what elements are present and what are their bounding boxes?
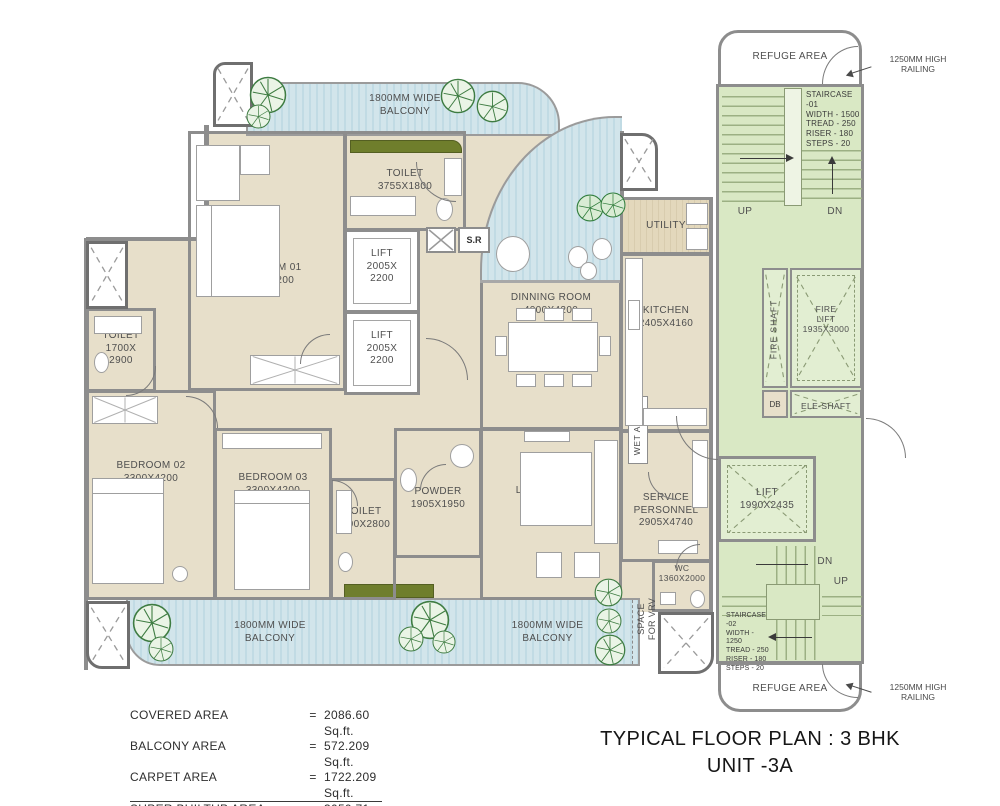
furniture-sofa xyxy=(240,145,270,175)
staircase2-landing-right xyxy=(822,588,862,616)
staircase1-left-flight xyxy=(722,88,784,204)
furniture-vanity xyxy=(350,196,416,216)
balcony-bottom-left-label: 1800MM WIDEBALCONY xyxy=(205,620,335,645)
area-row: BALCONY AREA=572.209 Sq.ft. xyxy=(130,739,382,770)
furniture-wc xyxy=(94,352,109,373)
stair-arrow-line xyxy=(832,162,833,194)
shaft-top-middle xyxy=(620,133,658,191)
balcony-bottom-center-label: 1800MM WIDEBALCONY xyxy=(485,620,610,645)
furniture-wc xyxy=(690,590,705,608)
furniture-kitchen-counter xyxy=(625,258,643,426)
stair-arrow xyxy=(828,152,836,164)
staircase1-up-label: UP xyxy=(728,206,762,219)
furniture-wardrobe xyxy=(92,396,158,424)
area-table: COVERED AREA=2086.60 Sq.ft. BALCONY AREA… xyxy=(130,708,382,806)
furniture-chair xyxy=(599,336,611,356)
furniture-bed-head xyxy=(92,478,164,494)
furniture-chair xyxy=(516,308,536,321)
furniture-bed xyxy=(234,490,310,590)
tree-icon xyxy=(594,578,623,607)
furniture-armchair xyxy=(536,552,562,578)
stair-arrow-line xyxy=(740,158,786,159)
tree-icon xyxy=(398,626,424,652)
furniture-wc xyxy=(338,552,353,572)
staircase2-landing xyxy=(766,584,820,620)
tree-icon xyxy=(476,90,509,123)
floor-plan: 1800MM WIDEBALCONY 1800MM WIDEBALCONY 18… xyxy=(0,0,1000,806)
ele-shaft: ELE-SHAFT xyxy=(790,390,862,418)
furniture-chair xyxy=(580,262,597,280)
furniture-sink xyxy=(628,300,640,330)
vrv-label-wrap: SPACEFOR VRV xyxy=(614,606,684,632)
furniture-chair xyxy=(516,374,536,387)
area-row: SUPER BUILTUP AREA=3050.71 Sq.ft. xyxy=(130,802,382,806)
furniture-chair xyxy=(544,374,564,387)
stair-arrow-line xyxy=(772,637,812,638)
vrv-label: SPACEFOR VRV xyxy=(636,584,662,654)
fire-shaft: FIRE SHAFT xyxy=(762,268,788,388)
sr-store-box xyxy=(426,227,456,253)
furniture-chair xyxy=(592,238,612,260)
furniture-chair xyxy=(495,336,507,356)
tree-icon xyxy=(432,630,456,654)
lift-a-label: LIFT2005X2200 xyxy=(344,248,420,286)
furniture-armchair xyxy=(574,552,600,578)
area-row: COVERED AREA=2086.60 Sq.ft. xyxy=(130,708,382,739)
staircase1-stringer xyxy=(784,88,802,206)
tree-icon xyxy=(596,608,622,634)
furniture-washer xyxy=(686,203,708,225)
furniture-rug xyxy=(520,452,592,526)
shaft-bottom-left xyxy=(86,601,130,669)
staircase1-dn-label: DN xyxy=(818,206,852,219)
furniture-round-table xyxy=(496,236,530,272)
fire-shaft-label: FIRE SHAFT xyxy=(769,278,782,382)
railing-note-top: 1250MM HIGHRAILING xyxy=(872,54,964,74)
area-row: CARPET AREA=1722.209 Sq.ft. xyxy=(130,770,382,802)
furniture-vanity xyxy=(94,316,142,334)
furniture-wc xyxy=(400,468,417,492)
staircase2-up-label: UP xyxy=(824,576,858,589)
stair-arrow xyxy=(786,154,798,162)
core-lift-label: LIFT1990X2435 xyxy=(721,487,813,512)
sr-label: S.R xyxy=(458,227,490,253)
tree-icon xyxy=(594,634,626,666)
furniture-bed-head xyxy=(196,205,212,297)
staircase2-info: STAIRCASE -02WIDTH - 1250 TREAD - 250RIS… xyxy=(726,612,770,674)
furniture-basin xyxy=(450,444,474,468)
tree-icon xyxy=(246,104,271,129)
door-arc xyxy=(866,418,906,458)
furniture-basin xyxy=(660,592,676,605)
core-lift: LIFT1990X2435 xyxy=(718,456,816,542)
furniture-dining-table xyxy=(508,322,598,372)
furniture-chair xyxy=(572,308,592,321)
plan-title: TYPICAL FLOOR PLAN : 3 BHK UNIT -3A xyxy=(555,726,945,780)
lift-b-label: LIFT2005X2200 xyxy=(344,330,420,368)
furniture-bed-head xyxy=(234,490,310,504)
fire-lift-label: FIRELIFT1935X3000 xyxy=(792,304,860,334)
wall-segment xyxy=(709,197,713,614)
tree-icon xyxy=(440,78,476,114)
staircase1-info: STAIRCASE -01WIDTH - 1500 TREAD - 250RIS… xyxy=(806,90,864,149)
db-box: DB xyxy=(762,390,788,418)
furniture-chair xyxy=(572,374,592,387)
ele-shaft-label: ELE-SHAFT xyxy=(792,401,860,411)
furniture-console xyxy=(524,431,570,442)
furniture-side-table xyxy=(172,566,188,582)
furniture-shelf xyxy=(222,433,322,449)
fire-lift: FIRELIFT1935X3000 xyxy=(790,268,862,388)
tree-icon xyxy=(600,192,626,218)
staircase2-dn-label: DN xyxy=(808,556,842,569)
furniture-sofa xyxy=(594,440,618,544)
shaft-left xyxy=(86,241,128,309)
furniture-sofa xyxy=(196,145,240,201)
furniture-washer xyxy=(686,228,708,250)
tree-icon xyxy=(148,636,174,662)
stair-arrow-line xyxy=(756,564,808,565)
furniture-chair xyxy=(544,308,564,321)
railing-note-bottom: 1250MM HIGHRAILING xyxy=(872,682,964,702)
